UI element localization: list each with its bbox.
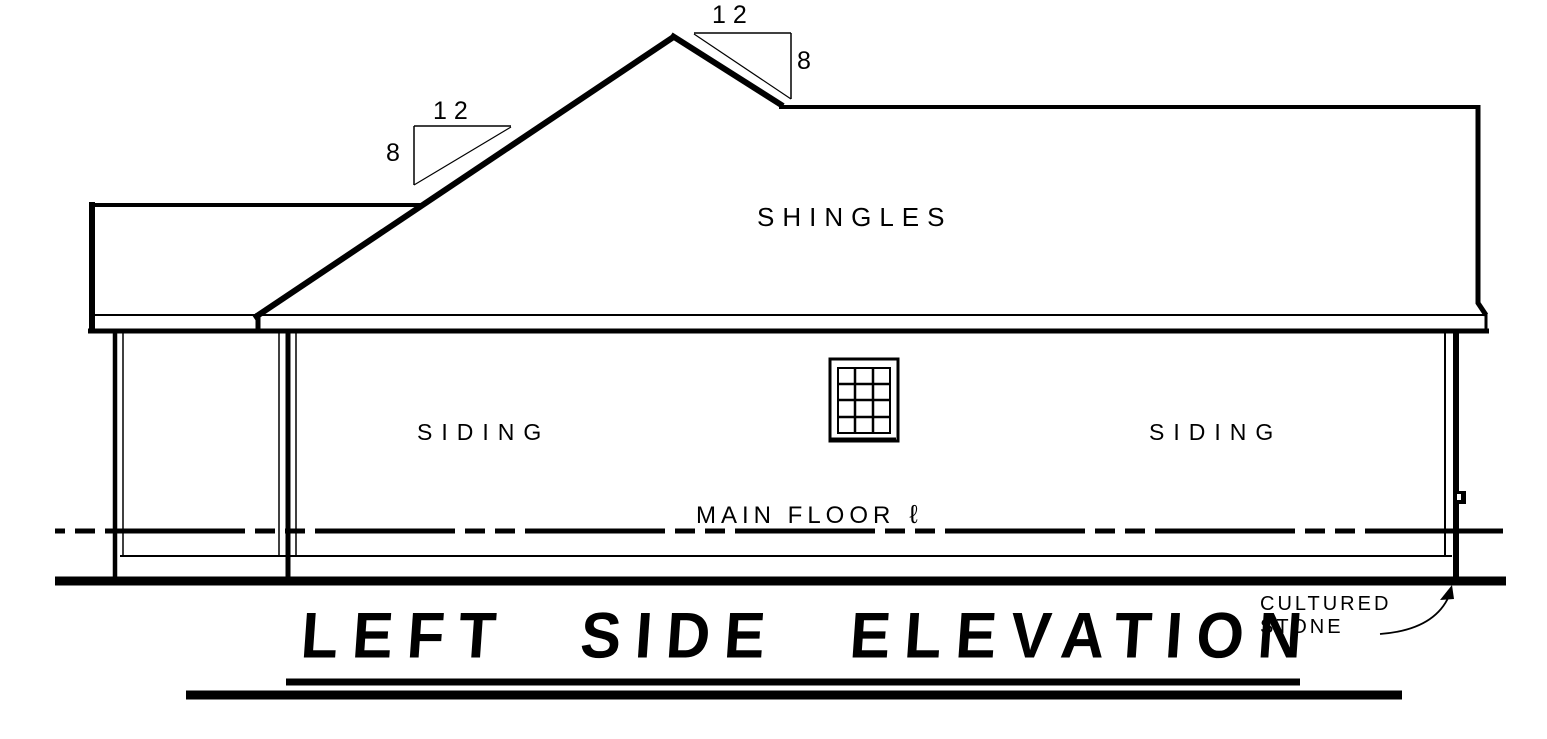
pitch-right-rise-label: 8 — [797, 49, 818, 74]
siding-label-right: SIDING — [1149, 421, 1282, 444]
pitch-left-rise-label: 8 — [386, 141, 407, 166]
porch-roof-outline — [89, 202, 424, 332]
title-underlines — [186, 682, 1402, 695]
main-floor-label-text: MAIN FLOOR — [696, 502, 895, 529]
elevation-drawing-sheet: 12 8 12 8 SHINGLES SIDING SIDING MAIN FL… — [0, 0, 1547, 739]
fascia-band — [88, 313, 1489, 332]
porch-post — [115, 333, 123, 580]
roof-material-label: SHINGLES — [757, 204, 953, 230]
window — [830, 359, 898, 441]
pitch-left-run-label: 12 — [433, 99, 475, 124]
right-wall-edge — [1445, 333, 1466, 580]
siding-label-left: SIDING — [417, 421, 550, 444]
pitch-right-run-label: 12 — [712, 3, 754, 28]
hose-bib-notch — [1457, 494, 1461, 500]
main-floor-label: MAIN FLOORℓ — [696, 501, 918, 528]
drawing-title: LEFT SIDE ELEVATION — [299, 603, 1318, 668]
left-corner-board — [279, 333, 296, 580]
pitch-triangle-right — [694, 33, 791, 99]
main-roof-outline — [254, 35, 1486, 318]
floor-level-symbol: ℓ — [909, 499, 917, 529]
